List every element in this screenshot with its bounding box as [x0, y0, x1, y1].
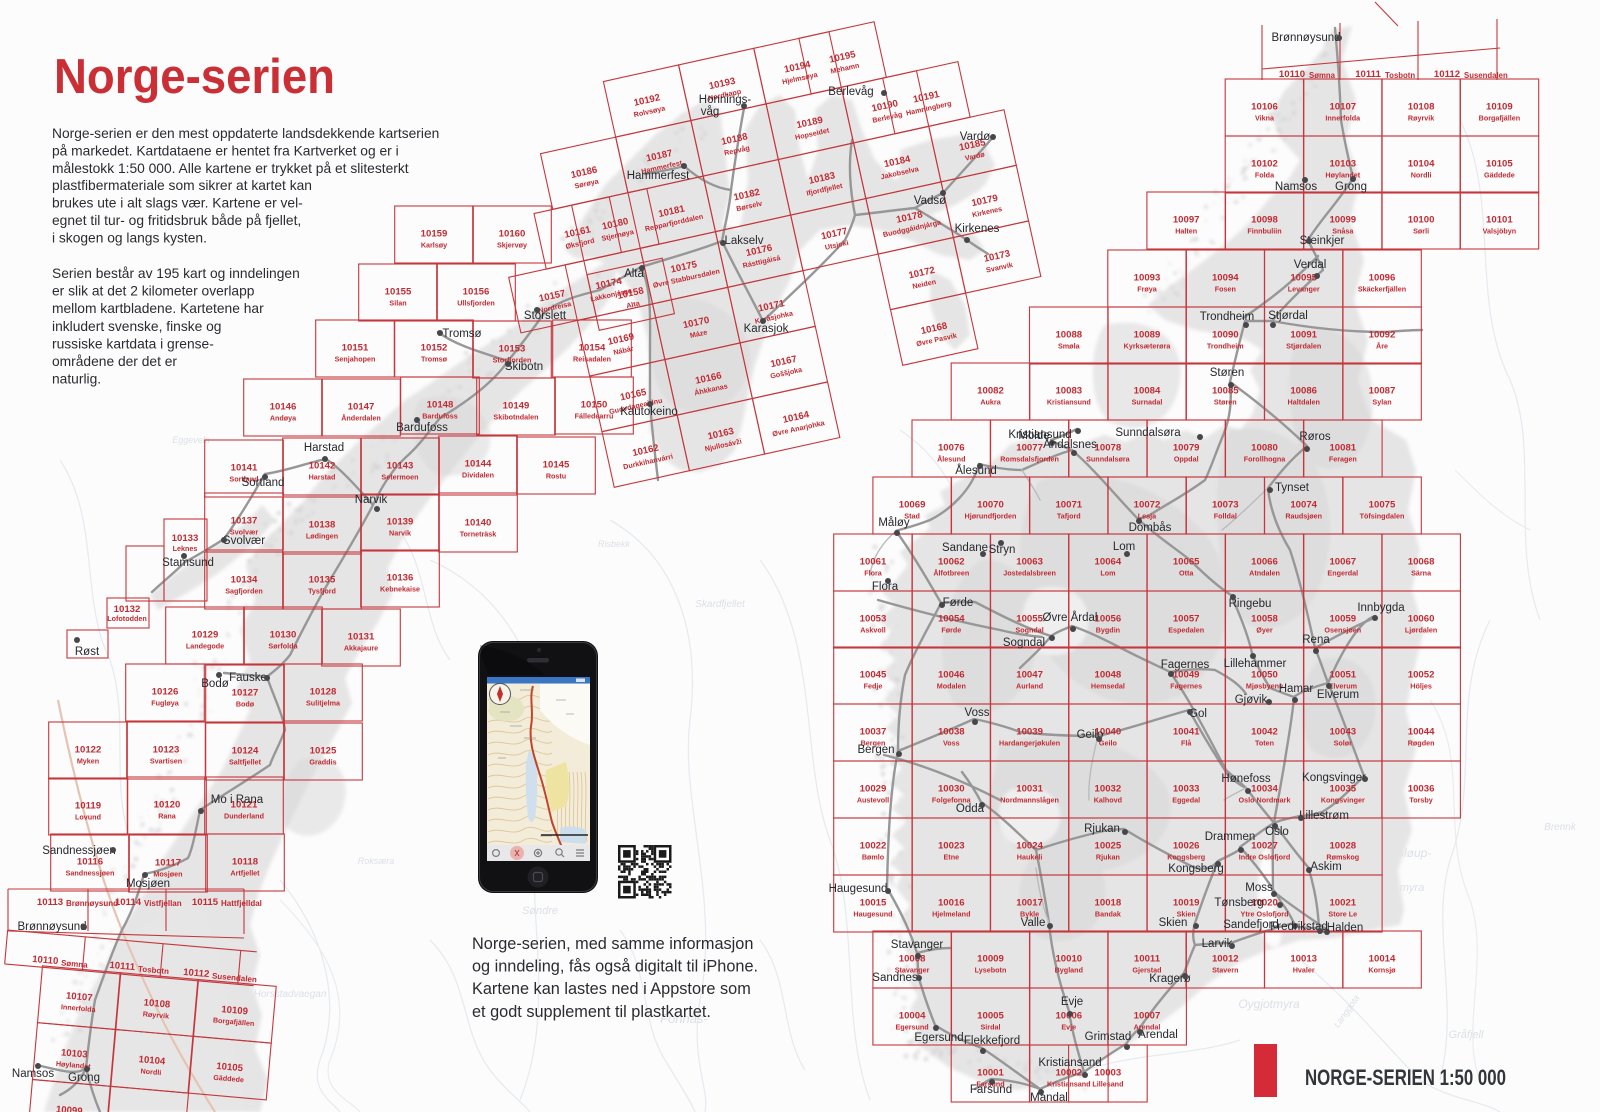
svg-text:Risbekk: Risbekk: [598, 539, 631, 549]
svg-text:Ånderdalen: Ånderdalen: [341, 414, 381, 423]
svg-text:Bardufoss: Bardufoss: [396, 422, 448, 434]
svg-text:10070: 10070: [977, 500, 1004, 511]
svg-text:myra: myra: [1400, 882, 1424, 894]
svg-text:Kirkenes: Kirkenes: [955, 223, 1000, 235]
svg-text:10057: 10057: [1173, 614, 1200, 625]
svg-text:Feragen: Feragen: [1329, 455, 1357, 464]
svg-text:Fagernes: Fagernes: [1161, 659, 1210, 671]
svg-text:10068: 10068: [1408, 557, 1435, 568]
svg-text:10138: 10138: [309, 520, 336, 531]
svg-text:Myken: Myken: [77, 757, 99, 766]
svg-text:10043: 10043: [1329, 727, 1356, 738]
svg-text:Tynset: Tynset: [1275, 482, 1310, 494]
svg-text:Storslett: Storslett: [524, 310, 567, 322]
svg-text:Kristiansund: Kristiansund: [1047, 398, 1091, 407]
svg-text:Borgafjällen: Borgafjällen: [1479, 114, 1521, 123]
svg-text:10035: 10035: [1329, 784, 1356, 795]
svg-text:10005: 10005: [977, 1011, 1004, 1022]
svg-text:10118: 10118: [232, 857, 259, 868]
svg-text:Flå: Flå: [1181, 739, 1192, 748]
svg-text:10087: 10087: [1369, 386, 1396, 397]
svg-text:Setermoen: Setermoen: [381, 473, 418, 482]
svg-text:Fálledearru: Fálledearru: [575, 412, 614, 421]
svg-text:Etne: Etne: [944, 853, 960, 862]
svg-text:10023: 10023: [938, 841, 965, 852]
svg-text:Bandak: Bandak: [1095, 910, 1121, 919]
svg-text:10008: 10008: [899, 954, 926, 965]
svg-text:områdene der det er: områdene der det er: [52, 354, 177, 369]
svg-text:Stavanger: Stavanger: [891, 939, 944, 951]
svg-text:Indre Oslofjord: Indre Oslofjord: [1239, 853, 1291, 862]
svg-text:10123: 10123: [153, 745, 180, 756]
svg-text:Askvoll: Askvoll: [860, 626, 886, 635]
svg-text:10072: 10072: [1134, 500, 1161, 511]
svg-text:10094: 10094: [1212, 273, 1239, 284]
svg-text:Otta: Otta: [1179, 569, 1194, 578]
svg-text:Tønsberg: Tønsberg: [1214, 897, 1263, 909]
svg-text:10105: 10105: [1486, 159, 1513, 170]
svg-text:Sandnessjøen: Sandnessjøen: [66, 869, 115, 878]
svg-text:10049: 10049: [1173, 670, 1200, 681]
svg-text:10071: 10071: [1055, 500, 1082, 511]
svg-text:Sylan: Sylan: [1372, 398, 1391, 407]
svg-text:10122: 10122: [75, 745, 102, 756]
svg-text:Tafjord: Tafjord: [1057, 512, 1081, 521]
svg-text:Haugesund: Haugesund: [829, 883, 888, 895]
svg-text:Flora: Flora: [872, 581, 899, 593]
svg-text:10024: 10024: [1016, 841, 1043, 852]
svg-text:10113: 10113: [37, 897, 63, 908]
svg-text:Kornsjø: Kornsjø: [1368, 966, 1396, 975]
svg-text:10012: 10012: [1212, 954, 1239, 965]
svg-text:Karasjok: Karasjok: [744, 323, 789, 335]
svg-text:Ålesund: Ålesund: [937, 455, 965, 464]
svg-text:Romsdalsfjorden: Romsdalsfjorden: [1000, 455, 1059, 464]
svg-text:Trondheim: Trondheim: [1207, 342, 1244, 351]
svg-text:Hemsedal: Hemsedal: [1091, 682, 1125, 691]
svg-text:10045: 10045: [860, 670, 887, 681]
svg-text:Haugesund: Haugesund: [853, 910, 892, 919]
svg-text:10048: 10048: [1095, 670, 1122, 681]
svg-text:10085: 10085: [1212, 386, 1239, 397]
svg-text:Kongsvinger: Kongsvinger: [1302, 772, 1366, 784]
svg-text:Drammen: Drammen: [1205, 831, 1255, 843]
svg-text:10142: 10142: [309, 461, 336, 472]
svg-text:Førde: Førde: [941, 626, 961, 635]
svg-text:Kongsberg: Kongsberg: [1167, 853, 1205, 862]
svg-text:Hattfjelldal: Hattfjelldal: [221, 899, 262, 908]
svg-text:Skäckerfjällen: Skäckerfjällen: [1358, 285, 1406, 294]
svg-text:Verdal: Verdal: [1294, 259, 1327, 271]
svg-text:10112: 10112: [1434, 69, 1460, 80]
svg-text:10116: 10116: [77, 857, 103, 868]
svg-text:Sørfolda: Sørfolda: [268, 642, 298, 651]
svg-text:Osensjøen: Osensjøen: [1324, 626, 1361, 635]
svg-text:10136: 10136: [387, 573, 414, 584]
svg-text:10102: 10102: [1251, 159, 1278, 170]
svg-text:10111: 10111: [109, 960, 136, 973]
svg-text:10073: 10073: [1212, 500, 1239, 511]
svg-text:10103: 10103: [60, 1047, 88, 1060]
svg-text:10124: 10124: [232, 746, 259, 757]
svg-text:Lysebotn: Lysebotn: [975, 966, 1007, 975]
svg-text:Kautokeino: Kautokeino: [620, 406, 678, 418]
svg-text:Bodø: Bodø: [201, 678, 229, 690]
svg-text:Evje: Evje: [1061, 1023, 1076, 1032]
svg-text:Rena: Rena: [1302, 634, 1330, 646]
svg-text:Artfjellet: Artfjellet: [230, 869, 260, 878]
svg-text:Toten: Toten: [1255, 739, 1274, 748]
svg-text:10111: 10111: [1355, 69, 1381, 80]
svg-text:Susendalen: Susendalen: [1464, 71, 1508, 80]
svg-text:Norge-serien, med samme inform: Norge-serien, med samme informasjon: [472, 935, 753, 953]
svg-text:10115: 10115: [192, 897, 219, 908]
svg-text:Egersund: Egersund: [914, 1032, 963, 1044]
svg-text:10131: 10131: [348, 632, 375, 643]
svg-text:Skardfjellet: Skardfjellet: [695, 599, 746, 610]
svg-text:Namsos: Namsos: [12, 1068, 54, 1080]
svg-text:Ålfotbreen: Ålfotbreen: [933, 569, 969, 578]
svg-text:10061: 10061: [860, 557, 887, 568]
svg-text:Arendal: Arendal: [1138, 1029, 1178, 1041]
svg-text:Norge-serien er den mest oppda: Norge-serien er den mest oppdaterte land…: [52, 126, 439, 141]
svg-text:Senjahopen: Senjahopen: [335, 355, 376, 364]
svg-text:Grong: Grong: [1335, 181, 1367, 193]
svg-text:10145: 10145: [543, 460, 570, 471]
svg-text:Røyrvik: Røyrvik: [1408, 114, 1434, 123]
svg-text:Ytre Oslofjord: Ytre Oslofjord: [1241, 910, 1289, 919]
svg-text:Haltdalen: Haltdalen: [1288, 398, 1320, 407]
svg-text:Grong: Grong: [68, 1072, 100, 1084]
svg-text:Höljes: Höljes: [1410, 682, 1432, 691]
svg-text:10013: 10013: [1290, 954, 1317, 965]
svg-text:Surnadal: Surnadal: [1132, 398, 1163, 407]
svg-text:Valsjöbyn: Valsjöbyn: [1483, 227, 1517, 236]
svg-text:Torsby: Torsby: [1409, 796, 1432, 805]
svg-text:Sogndal: Sogndal: [1015, 626, 1043, 635]
svg-text:Hjørundfjorden: Hjørundfjorden: [965, 512, 1017, 521]
svg-text:Åndalsnes: Åndalsnes: [1043, 438, 1097, 451]
svg-text:10129: 10129: [192, 630, 219, 641]
svg-text:Kyrksæterøra: Kyrksæterøra: [1124, 342, 1172, 351]
svg-text:10076: 10076: [938, 443, 965, 454]
svg-text:Skien: Skien: [1159, 917, 1188, 929]
svg-text:10066: 10066: [1251, 557, 1278, 568]
svg-text:Trondheim: Trondheim: [1200, 311, 1255, 323]
svg-text:Leknes: Leknes: [173, 544, 198, 553]
svg-text:10159: 10159: [421, 229, 448, 240]
svg-text:Mandal: Mandal: [1030, 1092, 1068, 1104]
svg-text:Stavern: Stavern: [1212, 966, 1238, 975]
svg-text:10014: 10014: [1369, 954, 1396, 965]
svg-text:Dunderland: Dunderland: [224, 812, 264, 821]
svg-text:10147: 10147: [348, 402, 375, 413]
svg-text:Serien består av 195 kart og i: Serien består av 195 kart og inndelingen: [52, 266, 300, 281]
svg-text:Sunndalsøra: Sunndalsøra: [1115, 427, 1181, 439]
svg-text:Lillestrøm: Lillestrøm: [1299, 810, 1349, 822]
svg-text:10030: 10030: [938, 784, 965, 795]
svg-text:Austevoll: Austevoll: [857, 796, 889, 805]
svg-text:10090: 10090: [1212, 330, 1239, 341]
svg-text:Elverum: Elverum: [1317, 689, 1359, 701]
svg-text:Hammerfest: Hammerfest: [627, 170, 690, 182]
svg-text:10041: 10041: [1173, 727, 1200, 738]
svg-text:Rostu: Rostu: [546, 472, 566, 481]
svg-text:10148: 10148: [427, 400, 454, 411]
svg-text:10047: 10047: [1016, 670, 1043, 681]
svg-text:Svartisen: Svartisen: [150, 757, 182, 766]
svg-text:Gjøvik: Gjøvik: [1235, 694, 1268, 706]
svg-text:Oslo Nordmark: Oslo Nordmark: [1239, 796, 1291, 805]
svg-text:10074: 10074: [1290, 500, 1317, 511]
svg-text:10155: 10155: [385, 287, 412, 298]
svg-text:Narvik: Narvik: [389, 529, 411, 538]
svg-text:10133: 10133: [172, 533, 199, 544]
svg-text:Bygdin: Bygdin: [1096, 626, 1120, 635]
svg-text:Ljørdalen: Ljørdalen: [1405, 626, 1437, 635]
svg-text:Sirdal: Sirdal: [981, 1023, 1001, 1032]
svg-text:Gråfjell: Gråfjell: [1449, 1029, 1484, 1041]
svg-text:Roksæra: Roksæra: [358, 856, 395, 866]
svg-text:Silan: Silan: [389, 299, 406, 308]
svg-text:Jostedalsbreen: Jostedalsbreen: [1003, 569, 1056, 578]
svg-text:Nordli: Nordli: [140, 1066, 161, 1077]
svg-text:10075: 10075: [1369, 500, 1396, 511]
svg-text:Harstad: Harstad: [309, 473, 336, 482]
svg-text:10025: 10025: [1095, 841, 1122, 852]
svg-text:Espedalen: Espedalen: [1168, 626, 1204, 635]
svg-text:10058: 10058: [1251, 614, 1278, 625]
svg-text:Bømlo: Bømlo: [862, 853, 885, 862]
svg-text:10088: 10088: [1055, 330, 1082, 341]
svg-text:Fagernes: Fagernes: [1170, 682, 1202, 691]
svg-text:Voss: Voss: [965, 707, 990, 719]
svg-text:Sandnes: Sandnes: [872, 972, 918, 984]
svg-text:10098: 10098: [1251, 215, 1278, 226]
svg-text:10036: 10036: [1408, 784, 1435, 795]
svg-text:Fugløya: Fugløya: [151, 699, 180, 708]
svg-text:plastfibermateriale som sikrer: plastfibermateriale som sikrer at kartet…: [52, 178, 312, 193]
svg-text:10160: 10160: [499, 229, 526, 240]
svg-text:Landegode: Landegode: [186, 642, 224, 651]
svg-text:10065: 10065: [1173, 557, 1200, 568]
svg-text:Graddis: Graddis: [309, 758, 336, 767]
svg-text:10109: 10109: [1486, 102, 1513, 113]
svg-text:10103: 10103: [1329, 159, 1356, 170]
svg-text:10053: 10053: [860, 614, 887, 625]
svg-text:Aukra: Aukra: [980, 398, 1001, 407]
svg-text:10084: 10084: [1134, 386, 1161, 397]
svg-text:på markedet. Kartdataene er he: på markedet. Kartdataene er hentet fra K…: [52, 143, 399, 158]
svg-text:Hønefoss: Hønefoss: [1221, 773, 1270, 785]
svg-text:10009: 10009: [977, 954, 1004, 965]
svg-text:egnet til tur- og fritidsbruk: egnet til tur- og fritidsbruk både på fj…: [52, 213, 301, 228]
svg-text:10109: 10109: [221, 1004, 249, 1017]
svg-text:10096: 10096: [1369, 273, 1396, 284]
svg-text:naturlig.: naturlig.: [52, 372, 101, 387]
svg-text:10134: 10134: [231, 575, 258, 586]
svg-text:Sørli: Sørli: [1413, 227, 1429, 236]
svg-text:10130: 10130: [270, 630, 297, 641]
svg-text:Halden: Halden: [1327, 922, 1363, 934]
svg-text:10078: 10078: [1095, 443, 1122, 454]
svg-text:Tysfjord: Tysfjord: [308, 587, 336, 596]
svg-text:Rjukan: Rjukan: [1084, 823, 1120, 835]
svg-text:10140: 10140: [465, 518, 492, 529]
svg-text:Harstad: Harstad: [304, 442, 344, 454]
svg-text:10079: 10079: [1173, 443, 1200, 454]
svg-text:NORGE-SERIEN 1:50 000: NORGE-SERIEN 1:50 000: [1305, 1065, 1506, 1090]
svg-text:Lovund: Lovund: [75, 813, 101, 822]
svg-text:Sagfjorden: Sagfjorden: [225, 587, 263, 596]
svg-text:10091: 10091: [1290, 330, 1317, 341]
svg-text:Kongsvinger: Kongsvinger: [1321, 796, 1365, 805]
svg-text:Namsos: Namsos: [1275, 181, 1317, 193]
svg-text:Nordmannslågen: Nordmannslågen: [1000, 796, 1059, 805]
svg-text:10151: 10151: [342, 343, 369, 354]
svg-text:Sogndal: Sogndal: [1003, 637, 1045, 649]
svg-text:Røst: Røst: [75, 646, 100, 658]
svg-text:10051: 10051: [1329, 670, 1356, 681]
svg-text:Brønnøysund: Brønnøysund: [17, 921, 86, 933]
svg-text:Lødingen: Lødingen: [306, 532, 338, 541]
svg-text:Kristiansand: Kristiansand: [1038, 1057, 1101, 1069]
svg-text:Støren: Støren: [1214, 398, 1237, 407]
svg-text:10067: 10067: [1329, 557, 1356, 568]
svg-text:Mo i Rana: Mo i Rana: [211, 794, 264, 806]
svg-text:10044: 10044: [1408, 727, 1435, 738]
svg-text:er slik at det 2 kilometer ove: er slik at det 2 kilometer overlapp: [52, 284, 255, 299]
svg-text:Eggevela: Eggevela: [172, 435, 210, 445]
svg-text:10156: 10156: [463, 287, 490, 298]
svg-text:Øvre Årdal: Øvre Årdal: [1043, 611, 1098, 624]
svg-text:10026: 10026: [1173, 841, 1200, 852]
svg-text:10092: 10092: [1369, 330, 1396, 341]
svg-text:10139: 10139: [387, 517, 414, 528]
svg-text:10029: 10029: [860, 784, 887, 795]
svg-text:Särna: Särna: [1411, 569, 1432, 578]
svg-text:10141: 10141: [231, 463, 258, 474]
svg-text:mellom kartbladene. Kartetene: mellom kartbladene. Kartetene har: [52, 301, 264, 316]
svg-text:Mjøsbyene: Mjøsbyene: [1246, 682, 1283, 691]
svg-text:Stamsund: Stamsund: [162, 557, 214, 569]
svg-text:Søndre: Søndre: [522, 905, 558, 917]
svg-text:10056: 10056: [1095, 614, 1122, 625]
svg-text:Karlsøy: Karlsøy: [421, 241, 447, 250]
svg-text:Vikna: Vikna: [1255, 114, 1275, 123]
svg-text:10046: 10046: [938, 670, 965, 681]
svg-text:10100: 10100: [1408, 215, 1435, 226]
svg-text:10104: 10104: [1408, 159, 1435, 170]
svg-text:Måløy: Måløy: [878, 517, 910, 529]
svg-text:Hardangerjøkulen: Hardangerjøkulen: [999, 739, 1060, 748]
svg-text:10097: 10097: [1173, 215, 1200, 226]
svg-text:Kartene kan lastes ned i Appst: Kartene kan lastes ned i Appstore som: [472, 980, 751, 998]
svg-text:Skjervøy: Skjervøy: [497, 241, 527, 250]
svg-text:Nordli: Nordli: [1411, 171, 1432, 180]
svg-text:Innbygda: Innbygda: [1357, 602, 1405, 614]
svg-text:Skibotndalen: Skibotndalen: [493, 413, 538, 422]
svg-text:Finnbuliin: Finnbuliin: [1247, 227, 1281, 236]
svg-text:10153: 10153: [499, 344, 526, 355]
svg-text:Saltfjellet: Saltfjellet: [229, 758, 262, 767]
svg-text:Dividalen: Dividalen: [462, 471, 494, 480]
svg-text:10104: 10104: [138, 1054, 166, 1067]
svg-text:Torneträsk: Torneträsk: [460, 530, 497, 539]
svg-text:Moss: Moss: [1245, 882, 1273, 894]
svg-text:Tromsø: Tromsø: [421, 355, 448, 364]
svg-text:10095: 10095: [1290, 273, 1317, 284]
svg-text:Flekkefjord: Flekkefjord: [964, 1035, 1020, 1047]
svg-text:Berlevåg: Berlevåg: [828, 86, 873, 98]
svg-text:Fosen: Fosen: [1215, 285, 1236, 294]
svg-text:Øyer: Øyer: [1256, 626, 1273, 635]
svg-text:Solør: Solør: [1334, 739, 1353, 748]
svg-text:Flora: Flora: [864, 569, 883, 578]
svg-text:Lakselv: Lakselv: [725, 235, 764, 247]
svg-text:Røros: Røros: [1299, 431, 1331, 443]
svg-text:10038: 10038: [938, 727, 965, 738]
svg-text:Evje: Evje: [1061, 996, 1083, 1008]
svg-text:et godt supplement til plastka: et godt supplement til plastkartet.: [472, 1003, 711, 1021]
svg-text:Gäddede: Gäddede: [1484, 171, 1515, 180]
svg-text:Store Le: Store Le: [1328, 910, 1357, 919]
svg-text:Farsund: Farsund: [970, 1084, 1012, 1096]
svg-text:Hvaler: Hvaler: [1293, 966, 1315, 975]
svg-text:Stjørdal: Stjørdal: [1268, 310, 1308, 322]
svg-text:Modalen: Modalen: [937, 682, 966, 691]
svg-text:10003: 10003: [1095, 1068, 1122, 1079]
svg-text:Folda: Folda: [1255, 171, 1275, 180]
svg-text:10135: 10135: [309, 575, 336, 586]
svg-text:10016: 10016: [938, 898, 965, 909]
svg-text:10108: 10108: [1408, 102, 1435, 113]
svg-text:10032: 10032: [1095, 784, 1122, 795]
svg-text:Andøya: Andøya: [270, 414, 297, 423]
svg-text:Sømna: Sømna: [1309, 71, 1336, 80]
svg-text:Tromsø: Tromsø: [442, 328, 481, 340]
svg-text:10069: 10069: [899, 500, 926, 511]
svg-text:Fedje: Fedje: [864, 682, 883, 691]
svg-text:10128: 10128: [310, 687, 337, 698]
svg-text:10127: 10127: [232, 688, 259, 699]
svg-text:10143: 10143: [387, 461, 414, 472]
svg-text:10099: 10099: [55, 1104, 83, 1112]
svg-text:10125: 10125: [310, 746, 337, 757]
svg-text:Brennk: Brennk: [1544, 822, 1577, 833]
svg-text:Narvik: Narvik: [355, 494, 388, 506]
svg-text:Oygjotmyra: Oygjotmyra: [1238, 997, 1300, 1011]
svg-text:Lofotodden: Lofotodden: [107, 614, 147, 623]
svg-text:10015: 10015: [860, 898, 887, 909]
svg-text:Svolvær: Svolvær: [223, 535, 265, 547]
svg-text:Tosbotn: Tosbotn: [1385, 71, 1415, 80]
svg-text:10007: 10007: [1134, 1011, 1161, 1022]
svg-text:brukes ute i alt slags vær. Ka: brukes ute i alt slags vær. Kartene er v…: [52, 196, 303, 211]
svg-text:10080: 10080: [1251, 443, 1278, 454]
svg-text:våg: våg: [701, 106, 720, 118]
svg-text:Vadsø: Vadsø: [914, 195, 946, 207]
svg-text:10146: 10146: [270, 402, 297, 413]
svg-text:Levanger: Levanger: [1288, 285, 1320, 294]
svg-text:10083: 10083: [1055, 386, 1082, 397]
svg-text:Førde: Førde: [943, 597, 974, 609]
svg-text:Ringebu: Ringebu: [1229, 598, 1272, 610]
svg-text:Sandnessjøen: Sandnessjøen: [42, 845, 116, 857]
svg-text:Valle: Valle: [1021, 917, 1046, 929]
svg-text:Lom: Lom: [1113, 541, 1135, 553]
svg-text:Voss: Voss: [943, 739, 960, 748]
